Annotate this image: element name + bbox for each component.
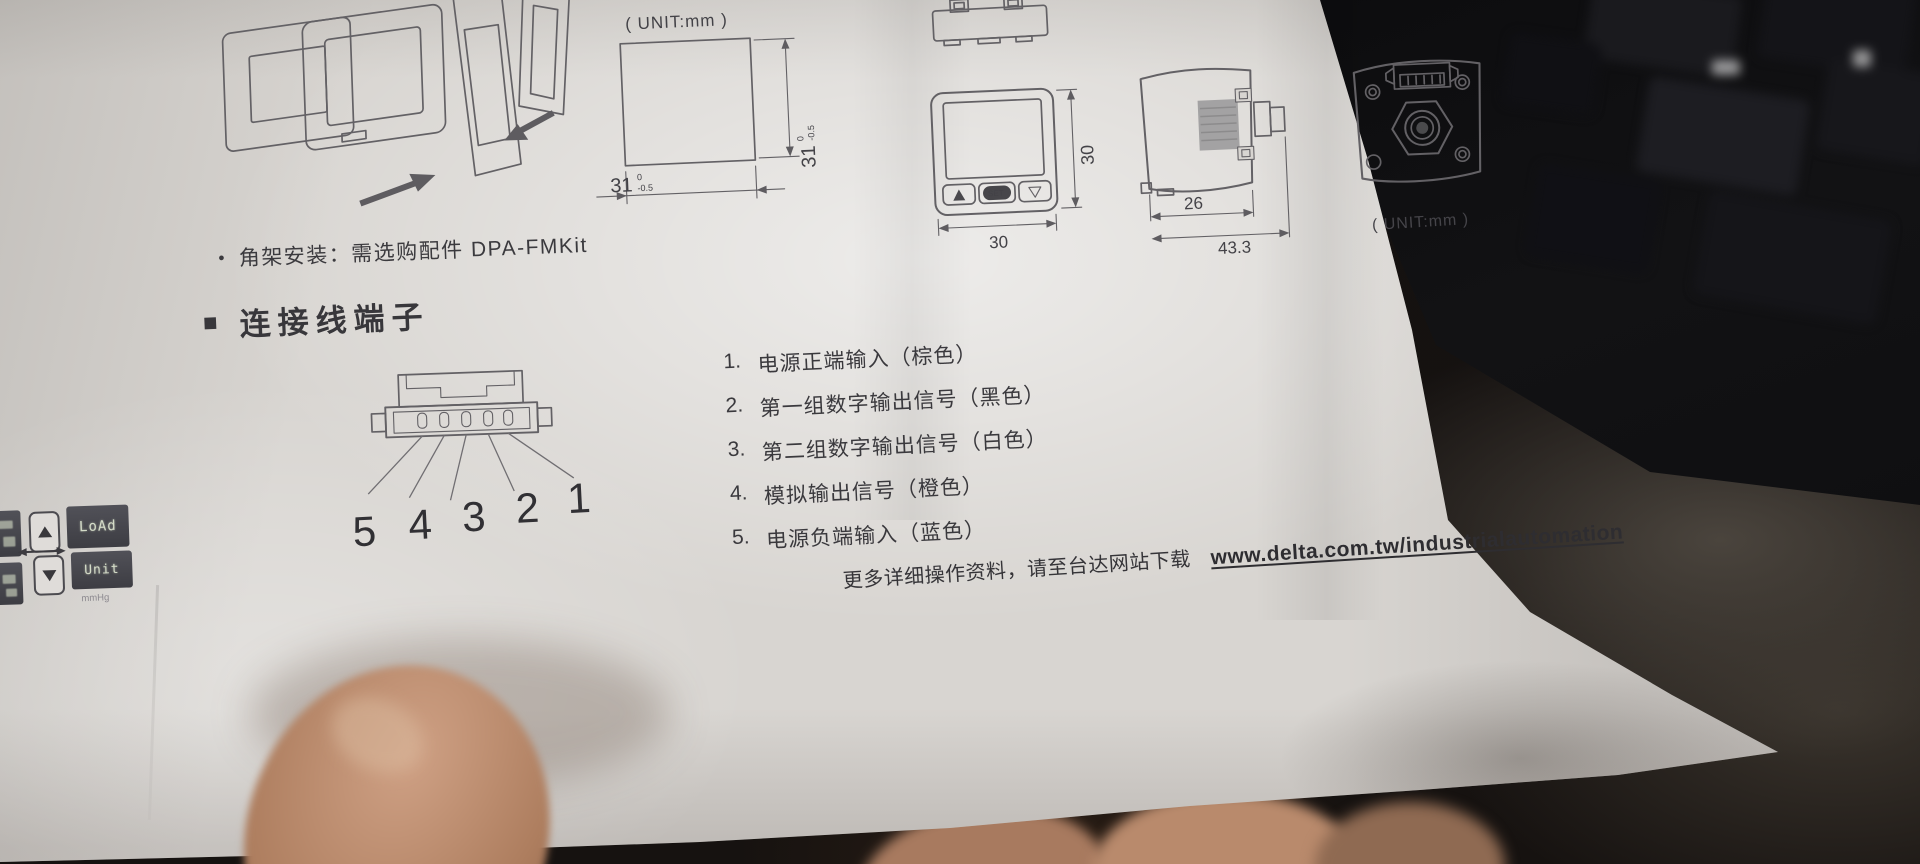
height-dimension [754,38,799,158]
meter-back-view-drawing [1337,47,1503,199]
cutout-height-tol-upper: 0 [795,136,805,141]
list-item-number: 3. [727,437,762,469]
pin-number: 5 [351,507,377,556]
up-arrow-icon [953,189,965,201]
meter-top-view-drawing [924,0,1062,53]
list-item-number: 2. [725,393,760,425]
list-item: 2. 第一组数字输出信号（黑色） [725,374,1146,424]
key-legend [1853,50,1871,67]
list-item: 4. 模拟输出信号（橙色） [729,462,1150,512]
keyboard-key [1815,58,1920,166]
list-item-text: 第二组数字输出信号（白色） [761,423,1048,467]
front-width-value: 30 [989,232,1009,252]
set-button-label: SET [988,189,1004,199]
list-item-number: 5. [731,525,766,557]
photo-of-manual-page: ( UNIT:mm ) 31 0 -0.5 31 0 -0.5 [0,0,1920,864]
pin-number: 4 [407,500,433,549]
list-item-number: 4. [729,481,764,513]
square-bullet-icon: ■ [203,309,219,338]
exploded-mounting-drawing [201,0,609,229]
side-page-icons: LoAd Unit mmHg [0,492,147,628]
list-item-text: 模拟输出信号（橙色） [763,470,984,511]
unit-label-left: ( UNIT:mm ) [625,10,728,33]
down-arrow-icon [1029,187,1041,198]
key-legend [1712,60,1740,75]
lcd-display-load: LoAd [66,505,129,549]
lcd-display-unit: Unit [71,550,133,589]
down-button-icon [33,555,65,596]
keyboard-key [1635,76,1810,196]
list-item: 3. 第二组数字输出信号（白色） [727,418,1148,468]
pin-number: 1 [566,474,592,523]
keyboard-key [1501,32,1602,116]
panel-cutout-drawing: ( UNIT:mm ) 31 0 -0.5 31 0 -0.5 [580,0,839,220]
assembly-arrow-icon [357,113,556,204]
bullet-icon: ● [218,252,225,264]
cutout-height-value: 31 [798,145,821,168]
pin-number: 2 [514,484,540,533]
unit-caption: mmHg [81,592,109,604]
lcd-text: LoAd [79,518,117,535]
list-item-text: 电源负端输入（蓝色） [765,514,986,555]
pin-number: 3 [461,492,487,541]
pressure-port [1416,122,1429,135]
lcd-display-partial [0,562,24,606]
meter-front-view-drawing: SET 30 30 [924,80,1107,258]
cutout-width-value: 31 [610,174,633,197]
lcd-text: Unit [84,562,120,578]
side-depth-value: 26 [1184,194,1204,214]
list-item-text: 第一组数字输出信号（黑色） [759,379,1046,423]
section-title: 连接线端子 [239,291,431,344]
keyboard-key [1692,190,1892,326]
cutout-height-tol-lower: -0.5 [806,125,817,141]
keyboard-key [1526,163,1661,273]
front-height-value: 30 [1077,144,1098,165]
list-item-number: 1. [723,349,758,381]
meter-side-view-drawing: 26 43.3 [1122,52,1309,260]
cutout-width-tol-lower: -0.5 [637,183,653,194]
wiring-list: 1. 电源正端输入（棕色） 2. 第一组数字输出信号（黑色） 3. 第二组数字输… [723,330,1153,570]
cutout-width-tol-upper: 0 [637,172,642,182]
